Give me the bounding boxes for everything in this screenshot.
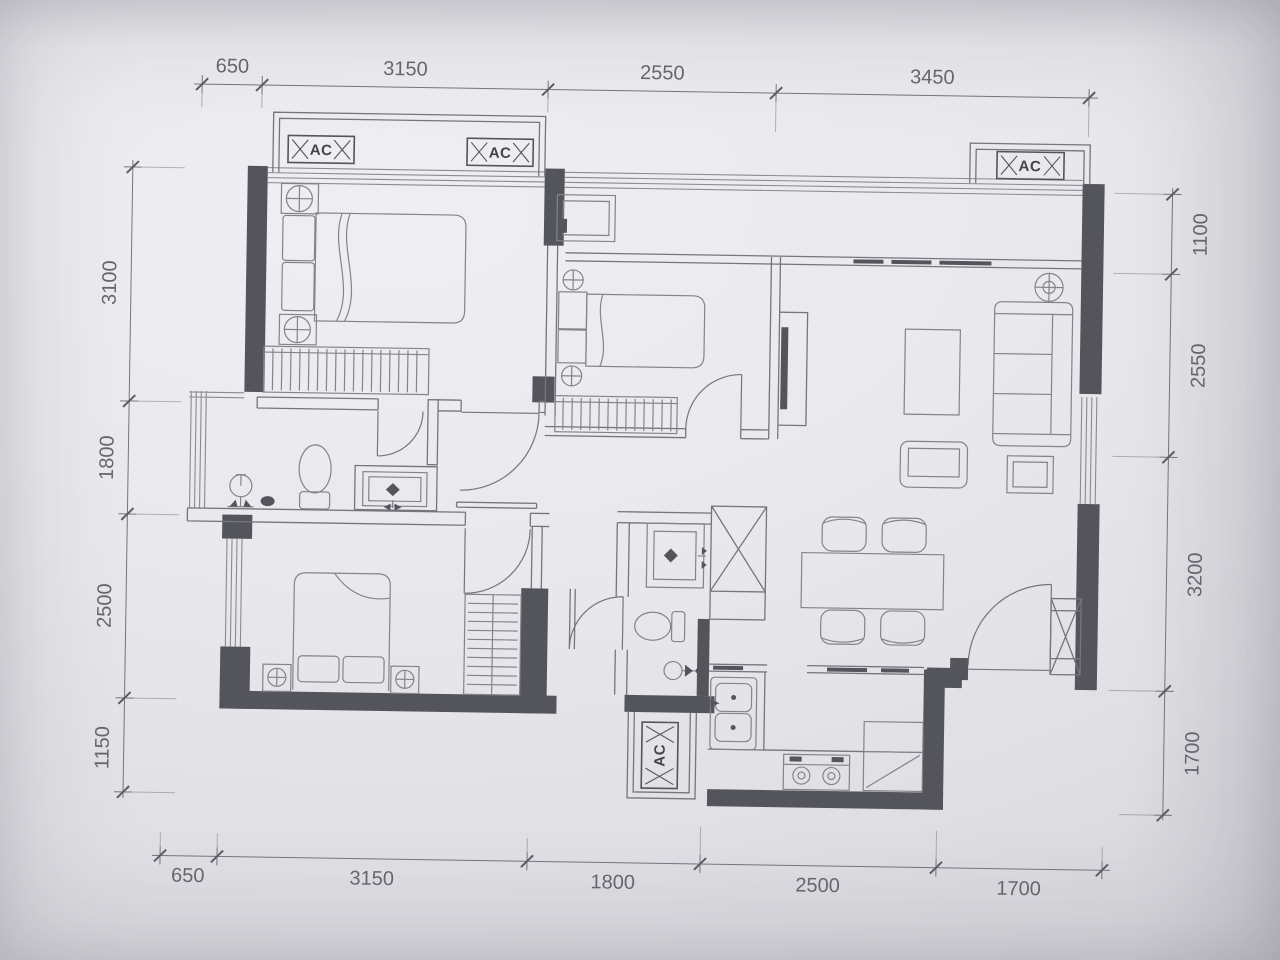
dim-bottom-1: 650 bbox=[171, 865, 205, 888]
living-room-furniture bbox=[900, 271, 1073, 494]
kitchen-furniture bbox=[709, 677, 924, 791]
walls bbox=[218, 163, 1105, 812]
dim-left-3: 2500 bbox=[94, 583, 117, 628]
ac-label: AC bbox=[489, 145, 512, 162]
dim-bottom-4: 2500 bbox=[795, 874, 840, 897]
bedroom1-furniture bbox=[263, 183, 466, 395]
windows bbox=[185, 166, 1100, 660]
dim-top-4: 3450 bbox=[910, 66, 955, 89]
ac-label: AC bbox=[310, 142, 333, 159]
dimension-chain-bottom: 650 3150 1800 2500 1700 bbox=[152, 818, 1111, 901]
dim-left-1: 3100 bbox=[99, 260, 122, 305]
dim-top-2: 3150 bbox=[383, 58, 428, 81]
dim-right-4: 1700 bbox=[1181, 731, 1204, 776]
dim-right-3: 3200 bbox=[1184, 552, 1207, 597]
dim-left-2: 1800 bbox=[96, 435, 119, 480]
dim-right-2: 2550 bbox=[1188, 343, 1211, 388]
ac-label: AC bbox=[1019, 158, 1042, 175]
dim-bottom-2: 3150 bbox=[349, 867, 394, 890]
floor-plan-svg: AC AC AC AC 650 3150 2550 3450 650 3150 … bbox=[0, 0, 1280, 960]
dim-left-4: 1150 bbox=[91, 726, 114, 769]
bedroom2-furniture bbox=[554, 195, 707, 434]
dim-bottom-3: 1800 bbox=[590, 871, 635, 894]
dimension-chain-top: 650 3150 2550 3450 bbox=[194, 55, 1099, 137]
bathroom1-fixtures bbox=[228, 444, 428, 512]
dim-top-1: 650 bbox=[216, 55, 250, 78]
bathroom2-fixtures bbox=[634, 523, 707, 680]
dining-furniture bbox=[800, 517, 944, 646]
dim-bottom-5: 1700 bbox=[996, 878, 1041, 901]
dim-top-3: 2550 bbox=[640, 62, 685, 85]
floor-plan-photo: AC AC AC AC 650 3150 2550 3450 650 3150 … bbox=[0, 0, 1280, 960]
ac-label: AC bbox=[652, 744, 669, 767]
dim-right-1: 1100 bbox=[1190, 213, 1213, 256]
dimension-chain-right: 1100 2550 3200 1700 bbox=[1105, 187, 1213, 821]
dimension-chain-left: 3100 1800 2500 1150 bbox=[91, 159, 185, 798]
